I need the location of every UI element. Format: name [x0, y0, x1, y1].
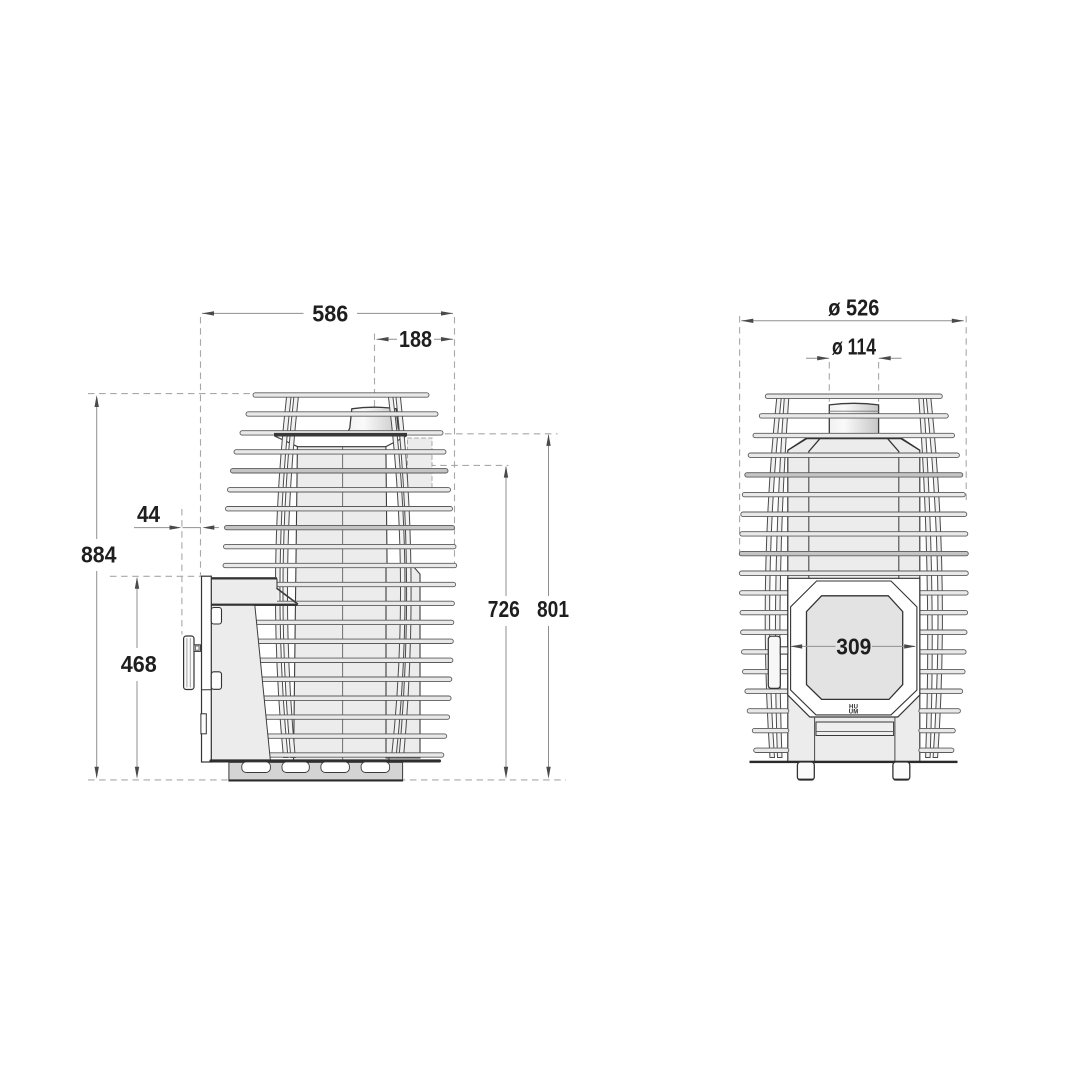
svg-text:468: 468 [121, 651, 157, 677]
svg-text:ø 526: ø 526 [828, 294, 879, 320]
svg-text:726: 726 [488, 596, 520, 622]
svg-text:UM: UM [849, 710, 859, 716]
svg-text:ø 114: ø 114 [832, 333, 876, 359]
svg-text:309: 309 [836, 633, 871, 659]
svg-text:884: 884 [81, 541, 117, 567]
svg-text:586: 586 [312, 300, 348, 326]
svg-text:801: 801 [537, 596, 569, 622]
svg-text:44: 44 [137, 501, 160, 527]
svg-text:188: 188 [399, 326, 432, 352]
